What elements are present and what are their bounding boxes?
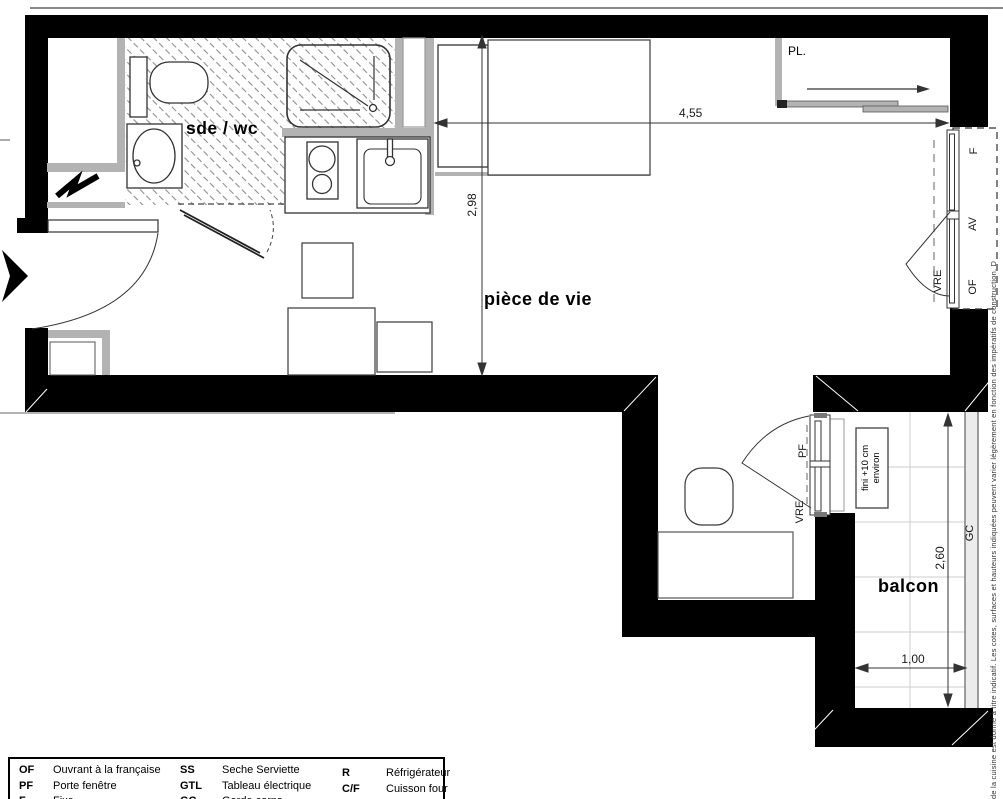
legend-key: PF xyxy=(19,779,53,795)
window-code-pf: PF xyxy=(797,444,809,458)
bathroom-label: sde / wc xyxy=(186,118,258,139)
balcony-label: balcon xyxy=(878,576,939,597)
wall-bottom-living xyxy=(25,375,658,412)
dining-table xyxy=(288,308,375,375)
partition-entry-top xyxy=(47,163,125,172)
partition-under-shower xyxy=(282,128,434,137)
legend-key: SS xyxy=(180,763,222,779)
gtl-electric-symbol xyxy=(57,176,98,196)
pl-end-cap xyxy=(777,100,787,108)
legend-label: Porte fenêtre xyxy=(53,779,117,795)
desk-chair xyxy=(685,468,733,525)
dim-label-260: 2,60 xyxy=(933,546,947,569)
legend-row: OF Ouvrant à la française xyxy=(19,763,161,779)
guardrail-label: GC xyxy=(964,525,976,542)
entry-closet-inner xyxy=(50,342,95,375)
fridge-oven-column xyxy=(438,45,488,167)
dim-label-298: 2,98 xyxy=(465,193,479,216)
legend-column-1: OF Ouvrant à la française PF Porte fenêt… xyxy=(19,763,161,799)
entrance-arrow xyxy=(2,250,28,302)
legend-row: R Réfrigérateur xyxy=(342,766,450,782)
legend-label: Réfrigérateur xyxy=(386,766,450,782)
balcony-door-pf xyxy=(742,413,844,517)
wall-balcony-top xyxy=(813,375,988,412)
dim-label-100: 1,00 xyxy=(901,652,924,666)
entrance-door-leaf xyxy=(48,220,158,232)
pf-swing xyxy=(742,416,811,508)
window-right xyxy=(906,128,997,309)
legend-key: C/F xyxy=(342,782,386,798)
basin-tap xyxy=(134,160,140,166)
wall-balcony-west xyxy=(815,513,855,747)
floorplan-page: sde / wc pièce de vie balcon PL. 4,55 2,… xyxy=(0,0,1003,799)
wall-balcony-south xyxy=(855,708,993,747)
legend-label: Cuisson four xyxy=(386,782,448,798)
hob-ring-large xyxy=(309,146,335,172)
partition-closet-pl xyxy=(775,38,782,106)
guardrail-fill xyxy=(965,412,978,708)
shower-drain xyxy=(370,105,377,112)
legend-row: GTL Tableau électrique xyxy=(180,779,311,795)
sink-tap xyxy=(388,139,393,158)
chair-top xyxy=(302,243,353,298)
sink-tap-head xyxy=(386,157,395,166)
desk xyxy=(658,532,793,598)
legend-label: Seche Serviette xyxy=(222,763,300,779)
partition-shower-right xyxy=(395,38,403,133)
bathroom-door xyxy=(180,210,273,258)
legend-key: R xyxy=(342,766,386,782)
pl-arrow-head xyxy=(917,85,930,93)
level-note-line2: environ xyxy=(871,452,882,483)
window-code-vre-balcony: VRE xyxy=(794,501,806,524)
legend-row: GC Garde corps xyxy=(180,794,311,799)
toilet-bowl xyxy=(150,62,208,103)
entrance-door-swing xyxy=(32,233,158,329)
balcony-level-note: fini +10 cm environ xyxy=(856,428,888,508)
legend-column-3: R Réfrigérateur C/F Cuisson four Faux pl… xyxy=(342,766,450,799)
legend-key: F xyxy=(19,794,53,799)
wall-left-upper xyxy=(25,15,48,233)
legend-row: PF Porte fenêtre xyxy=(19,779,161,795)
washbasin xyxy=(133,129,175,183)
legend-key: OF xyxy=(19,763,53,779)
edge-disclaimer-text: de la cuisine est donné à titre indicati… xyxy=(989,4,998,799)
legend-key: GTL xyxy=(180,779,222,795)
floorplan-drawing xyxy=(0,0,1003,799)
legend-label: Ouvrant à la française xyxy=(53,763,161,779)
wall-top xyxy=(25,15,988,38)
legend-label: Fixe xyxy=(53,794,74,799)
hob-ring-small xyxy=(313,175,332,194)
legend-row: F Fixe xyxy=(19,794,161,799)
window-pane-upper xyxy=(950,134,955,210)
bed xyxy=(488,40,650,175)
level-note-line1: fini +10 cm xyxy=(860,445,871,491)
wall-left-stub xyxy=(17,218,25,233)
legend-row: SS Seche Serviette xyxy=(180,763,311,779)
pf-pane-lower xyxy=(815,467,821,511)
pf-cap-top xyxy=(814,413,827,418)
pf-joint xyxy=(810,461,830,467)
pl-rail-2 xyxy=(863,106,948,112)
legend-key: GC xyxy=(180,794,222,799)
partition-entry-bottom xyxy=(47,202,125,208)
dim-label-455: 4,55 xyxy=(679,106,702,120)
closet-pl-label: PL. xyxy=(788,44,806,58)
wall-right-upper xyxy=(950,38,988,127)
pf-pane-upper xyxy=(815,421,821,461)
legend-column-2: SS Seche Serviette GTL Tableau électriqu… xyxy=(180,763,311,799)
duct-column xyxy=(403,38,425,127)
legend-row: C/F Cuisson four xyxy=(342,782,450,798)
legend-label: Tableau électrique xyxy=(222,779,311,795)
pf-cap-bottom xyxy=(814,512,827,517)
living-room-label: pièce de vie xyxy=(484,289,592,310)
legend-label: Garde corps xyxy=(222,794,283,799)
wall-nook-south xyxy=(658,600,815,637)
window-code-vre-right: VRE xyxy=(932,270,944,293)
chair-right xyxy=(377,322,432,372)
legend-box: OF Ouvrant à la française PF Porte fenêt… xyxy=(8,757,445,799)
wall-nook-west xyxy=(622,412,658,637)
window-pane-lower xyxy=(950,218,955,303)
entry-closet-top xyxy=(48,330,110,338)
pf-threshold xyxy=(830,419,844,511)
window-code-av: AV xyxy=(967,217,979,231)
window-joint xyxy=(947,211,959,219)
window-code-of: OF xyxy=(967,279,979,294)
toilet-tank xyxy=(130,57,147,117)
closet-pl xyxy=(777,85,948,112)
entry-closet-right xyxy=(102,330,110,375)
window-code-fixed: F xyxy=(968,148,980,155)
partition-bath-left xyxy=(117,38,125,172)
